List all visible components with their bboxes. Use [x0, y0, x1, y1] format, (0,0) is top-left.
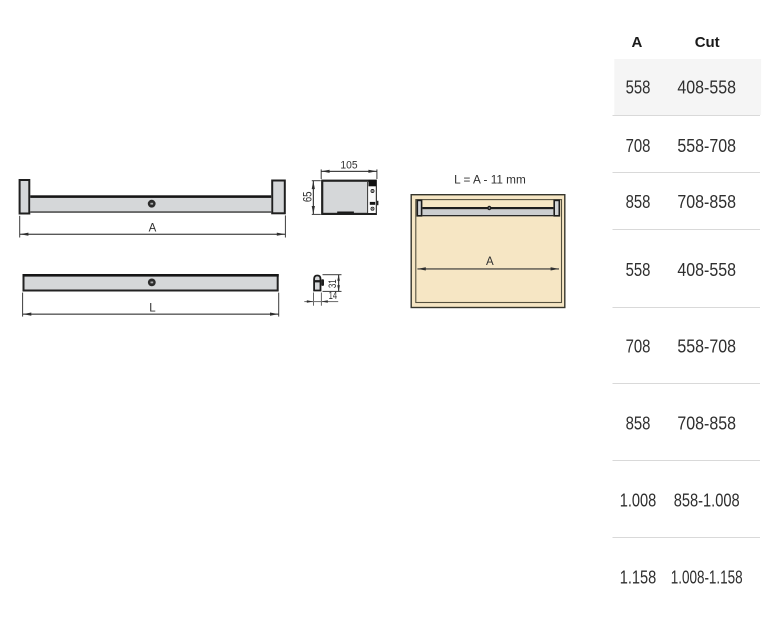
svg-text:708-858: 708-858 — [677, 413, 736, 434]
svg-text:A: A — [631, 34, 642, 51]
svg-text:31: 31 — [327, 279, 339, 288]
svg-text:558: 558 — [626, 76, 651, 97]
svg-text:1.008: 1.008 — [620, 490, 657, 511]
svg-text:Cut: Cut — [695, 34, 720, 51]
svg-text:858-1.008: 858-1.008 — [674, 490, 740, 511]
svg-text:708-858: 708-858 — [677, 191, 736, 212]
svg-text:408-558: 408-558 — [677, 259, 736, 280]
svg-text:105: 105 — [340, 160, 357, 172]
svg-text:708: 708 — [626, 336, 651, 357]
svg-text:L = A - 11 mm: L = A - 11 mm — [454, 174, 526, 186]
svg-text:558-708: 558-708 — [677, 135, 736, 156]
svg-text:L: L — [149, 302, 156, 314]
svg-text:408-558: 408-558 — [677, 76, 736, 97]
svg-text:558-708: 558-708 — [677, 336, 736, 357]
svg-text:1.158: 1.158 — [620, 567, 657, 588]
svg-text:14: 14 — [329, 290, 338, 302]
svg-text:A: A — [486, 256, 494, 268]
svg-text:A: A — [149, 223, 157, 235]
svg-text:1.008-1.158: 1.008-1.158 — [671, 567, 743, 588]
svg-text:858: 858 — [626, 191, 651, 212]
svg-text:65: 65 — [302, 191, 314, 202]
svg-text:558: 558 — [626, 259, 651, 280]
svg-text:708: 708 — [626, 135, 651, 156]
svg-text:858: 858 — [626, 413, 651, 434]
